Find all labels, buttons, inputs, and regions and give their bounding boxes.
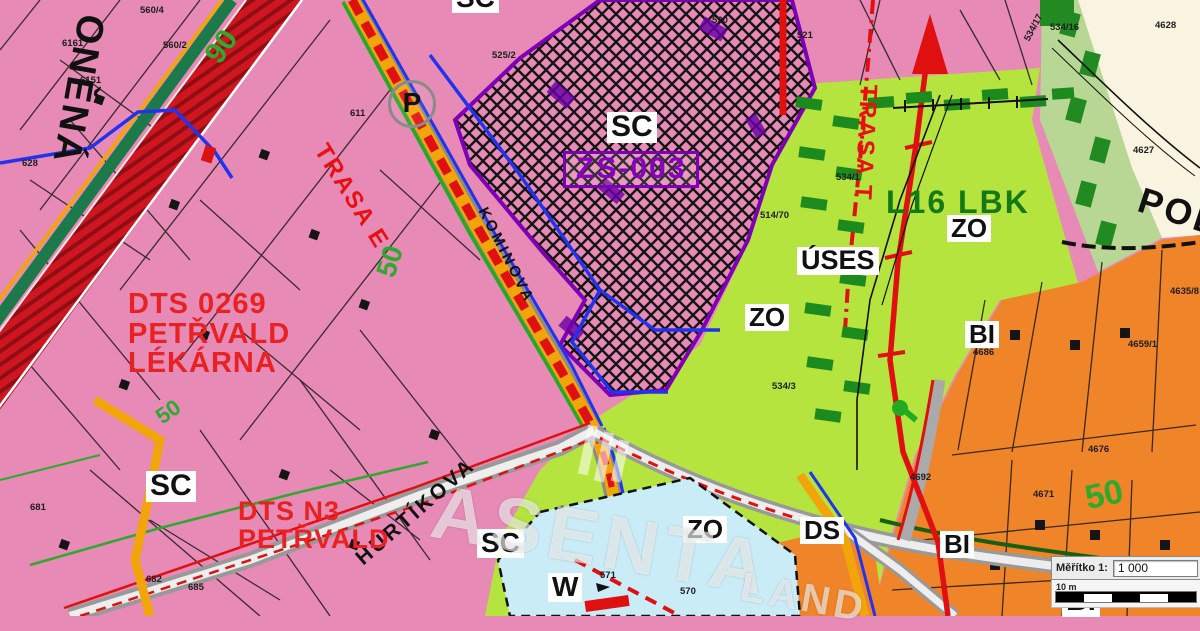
scale-input[interactable]: 1 000: [1113, 560, 1198, 577]
scale-widget: Měřítko 1: 1 000 10 m: [1051, 556, 1200, 608]
scale-label: Měřítko 1:: [1056, 562, 1108, 574]
scale-bar-label: 10 m: [1056, 582, 1198, 592]
scale-bar: [1056, 592, 1196, 602]
